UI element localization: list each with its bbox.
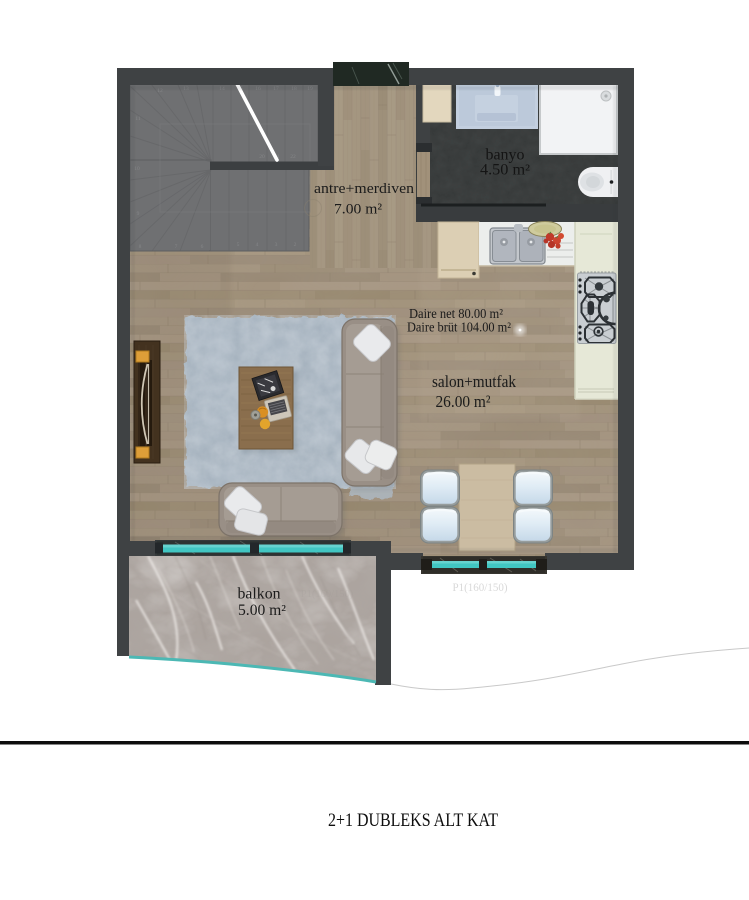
svg-text:balkon: balkon — [238, 586, 281, 603]
svg-text:26.00 m²: 26.00 m² — [436, 392, 491, 411]
svg-text:P1(160/150): P1(160/150) — [453, 582, 508, 594]
svg-text:4.50 m²: 4.50 m² — [480, 162, 530, 179]
svg-text:4: 4 — [256, 242, 259, 248]
svg-text:9: 9 — [137, 211, 140, 217]
svg-text:P1(160/150): P1(160/150) — [301, 589, 354, 600]
svg-text:7.00 m²: 7.00 m² — [334, 202, 383, 218]
svg-text:5.00 m²: 5.00 m² — [238, 602, 286, 619]
svg-text:6: 6 — [201, 244, 204, 250]
svg-text:2+1 DUBLEKS ALT KAT: 2+1 DUBLEKS ALT KAT — [328, 811, 498, 831]
svg-text:22: 22 — [290, 154, 296, 160]
svg-text:8: 8 — [139, 244, 142, 250]
svg-text:2: 2 — [294, 242, 297, 248]
svg-text:11: 11 — [135, 116, 141, 122]
svg-text:salon+mutfak: salon+mutfak — [432, 372, 517, 391]
svg-text:5: 5 — [237, 242, 240, 248]
svg-text:20: 20 — [259, 154, 265, 160]
svg-text:antre+merdiven: antre+merdiven — [314, 181, 415, 197]
svg-text:3: 3 — [275, 242, 278, 248]
svg-text:10: 10 — [134, 166, 140, 172]
svg-text:7: 7 — [175, 244, 178, 250]
svg-text:Daire brüt 104.00 m²: Daire brüt 104.00 m² — [407, 320, 511, 335]
